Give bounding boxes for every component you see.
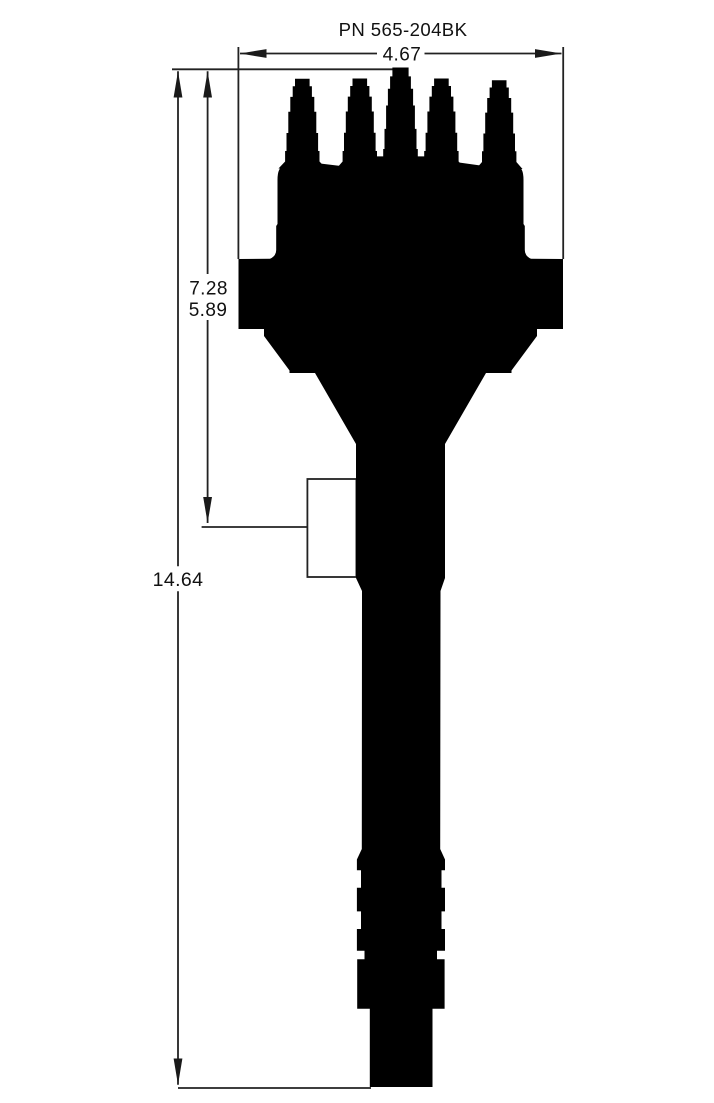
svg-text:14.64: 14.64 bbox=[153, 569, 204, 591]
svg-text:PN 565-204BK: PN 565-204BK bbox=[339, 19, 468, 40]
svg-text:4.67: 4.67 bbox=[383, 44, 422, 65]
svg-text:5.89: 5.89 bbox=[189, 300, 228, 321]
svg-text:7.28: 7.28 bbox=[189, 279, 228, 300]
